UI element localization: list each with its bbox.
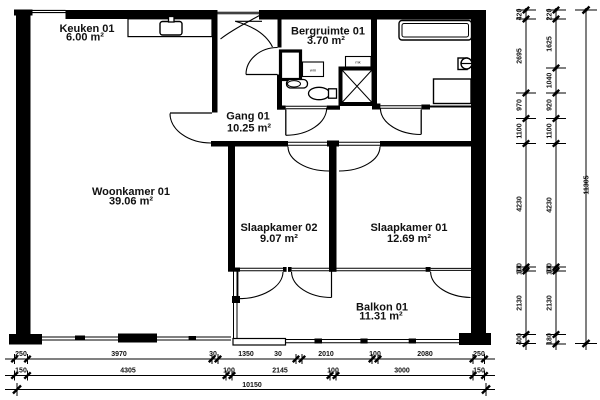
svg-text:1350: 1350 xyxy=(238,351,254,358)
svg-text:100: 100 xyxy=(223,368,235,375)
svg-text:6.00 m²: 6.00 m² xyxy=(66,31,104,43)
svg-text:12.69 m²: 12.69 m² xyxy=(387,233,431,245)
svg-text:2080: 2080 xyxy=(417,351,433,358)
svg-text:2130: 2130 xyxy=(547,295,554,311)
svg-text:30: 30 xyxy=(274,351,282,358)
svg-text:3.70 m²: 3.70 m² xyxy=(307,35,345,47)
svg-text:150: 150 xyxy=(15,368,27,375)
svg-text:3970: 3970 xyxy=(111,351,127,358)
svg-text:250: 250 xyxy=(15,351,27,358)
svg-text:100: 100 xyxy=(547,263,554,275)
svg-text:4230: 4230 xyxy=(517,196,524,212)
svg-text:220: 220 xyxy=(547,9,554,21)
svg-text:1100: 1100 xyxy=(517,123,524,138)
svg-text:10.25 m²: 10.25 m² xyxy=(227,123,271,135)
svg-text:100: 100 xyxy=(327,368,339,375)
svg-text:9.07 m²: 9.07 m² xyxy=(260,233,298,245)
svg-text:2130: 2130 xyxy=(517,295,524,311)
svg-text:4230: 4230 xyxy=(547,197,554,213)
svg-text:39.06 m²: 39.06 m² xyxy=(109,196,153,208)
svg-text:100: 100 xyxy=(369,351,381,358)
svg-text:wm: wm xyxy=(310,68,317,73)
svg-text:420: 420 xyxy=(517,9,524,21)
svg-text:2695: 2695 xyxy=(517,48,524,64)
svg-text:1625: 1625 xyxy=(547,36,554,52)
svg-text:3000: 3000 xyxy=(394,368,410,375)
svg-text:400: 400 xyxy=(517,333,524,345)
svg-text:30: 30 xyxy=(209,351,217,358)
svg-text:2010: 2010 xyxy=(318,351,334,358)
svg-text:1040: 1040 xyxy=(547,73,554,89)
svg-text:10150: 10150 xyxy=(242,382,262,389)
svg-text:2145: 2145 xyxy=(272,368,288,375)
svg-text:mk: mk xyxy=(355,60,360,65)
svg-text:180: 180 xyxy=(547,333,554,345)
svg-text:4305: 4305 xyxy=(120,368,136,375)
svg-text:11.31 m²: 11.31 m² xyxy=(359,311,403,323)
svg-text:250: 250 xyxy=(473,351,485,358)
svg-text:1100: 1100 xyxy=(547,123,554,138)
svg-text:150: 150 xyxy=(473,368,485,375)
svg-text:11305: 11305 xyxy=(584,175,591,194)
svg-text:Gang 01: Gang 01 xyxy=(226,111,269,123)
svg-text:970: 970 xyxy=(517,99,524,111)
svg-text:100: 100 xyxy=(517,263,524,275)
svg-text:920: 920 xyxy=(547,99,554,111)
